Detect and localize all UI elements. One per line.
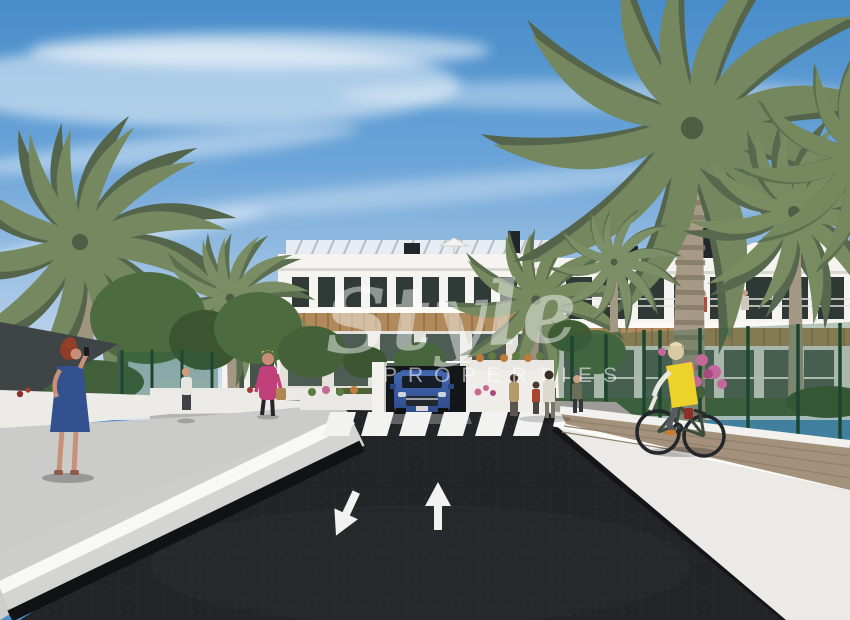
car <box>390 370 454 414</box>
handbag <box>276 388 286 400</box>
phone <box>84 347 89 356</box>
render-image: Style PROPERTIES <box>0 0 850 620</box>
